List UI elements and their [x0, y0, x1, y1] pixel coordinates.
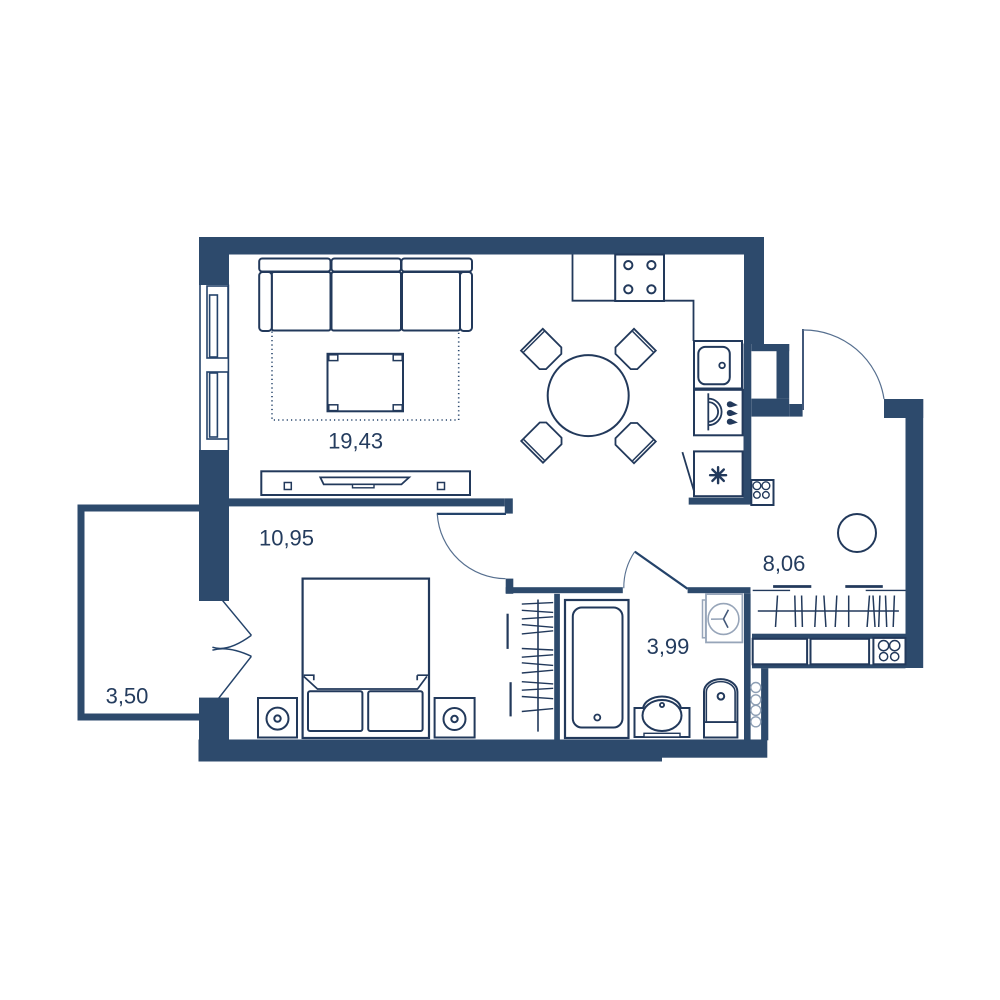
svg-text:3,99: 3,99: [647, 634, 690, 659]
svg-text:8,06: 8,06: [763, 551, 806, 576]
svg-text:10,95: 10,95: [259, 526, 314, 551]
svg-text:19,43: 19,43: [328, 428, 383, 453]
svg-text:3,50: 3,50: [106, 684, 149, 709]
